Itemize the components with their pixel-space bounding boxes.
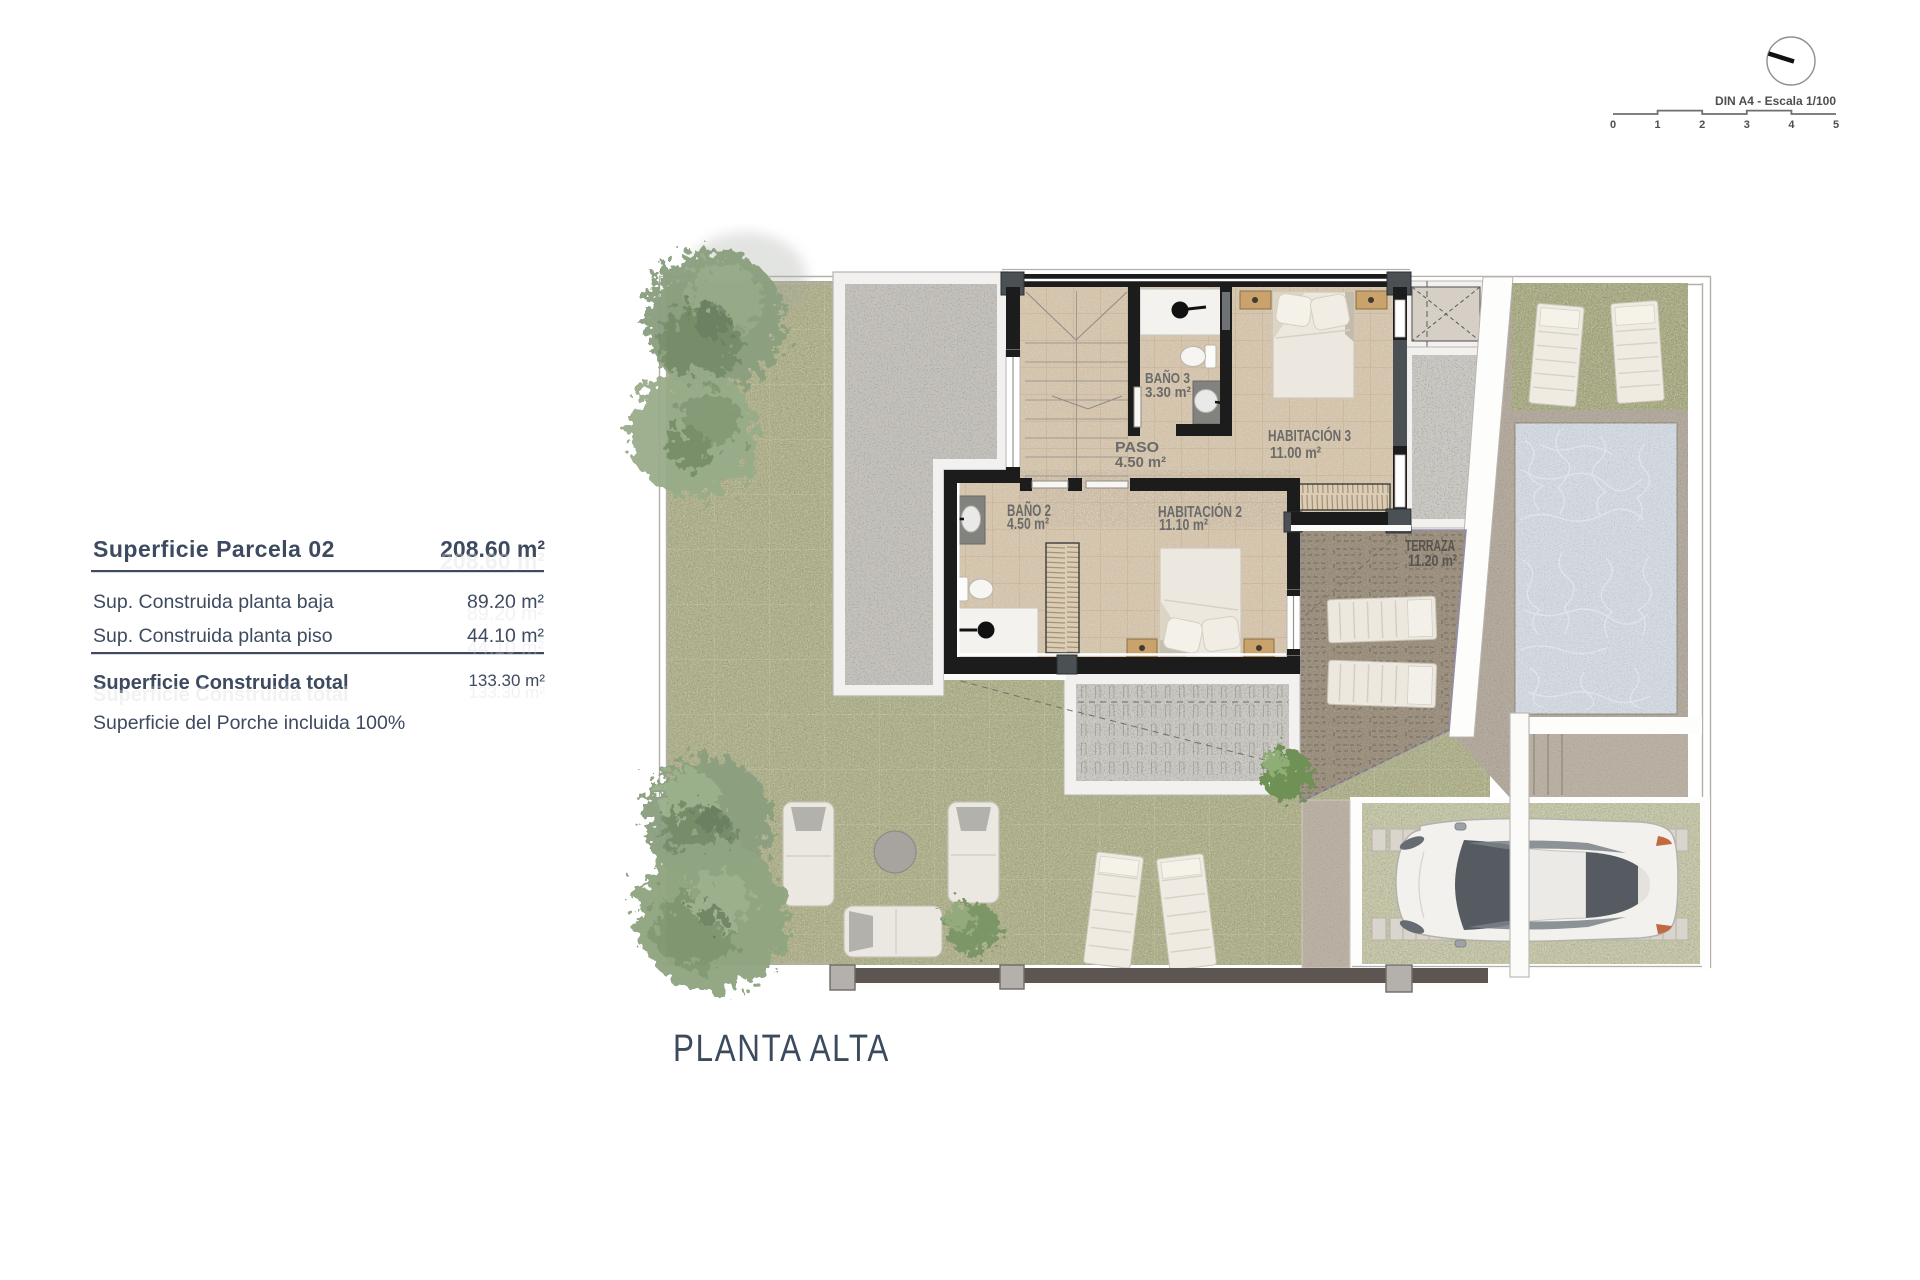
svg-text:133.30 m²: 133.30 m² (468, 683, 545, 702)
svg-text:1: 1 (1655, 119, 1661, 131)
svg-text:4: 4 (1788, 119, 1795, 131)
svg-text:HABITACIÓN 3: HABITACIÓN 3 (1268, 426, 1351, 445)
svg-text:DIN A4 - Escala 1/100: DIN A4 - Escala 1/100 (1715, 94, 1836, 108)
svg-text:11.20 m²: 11.20 m² (1408, 553, 1457, 570)
svg-text:11.10 m²: 11.10 m² (1159, 517, 1208, 534)
svg-text:PLANTA ALTA: PLANTA ALTA (673, 1028, 890, 1070)
svg-text:Sup. Construida planta piso: Sup. Construida planta piso (93, 625, 333, 647)
svg-text:Superficie Parcela 02: Superficie Parcela 02 (93, 536, 335, 562)
svg-text:4.50 m²: 4.50 m² (1115, 454, 1166, 471)
svg-text:0: 0 (1610, 119, 1616, 131)
svg-text:208.60 m²: 208.60 m² (440, 548, 545, 574)
svg-text:4.50 m²: 4.50 m² (1007, 516, 1049, 533)
svg-text:3: 3 (1744, 119, 1750, 131)
svg-text:Superficie Construida total: Superficie Construida total (93, 684, 349, 706)
svg-text:44.10 m²: 44.10 m² (467, 637, 544, 659)
svg-text:2: 2 (1699, 119, 1705, 131)
svg-text:11.00 m²: 11.00 m² (1270, 445, 1321, 462)
svg-text:Superficie del Porche incluida: Superficie del Porche incluida 100% (93, 712, 405, 734)
svg-text:3.30 m²: 3.30 m² (1145, 384, 1191, 401)
svg-text:5: 5 (1833, 119, 1839, 131)
svg-text:89.20 m²: 89.20 m² (467, 603, 544, 625)
svg-text:Sup. Construida planta baja: Sup. Construida planta baja (93, 591, 334, 613)
